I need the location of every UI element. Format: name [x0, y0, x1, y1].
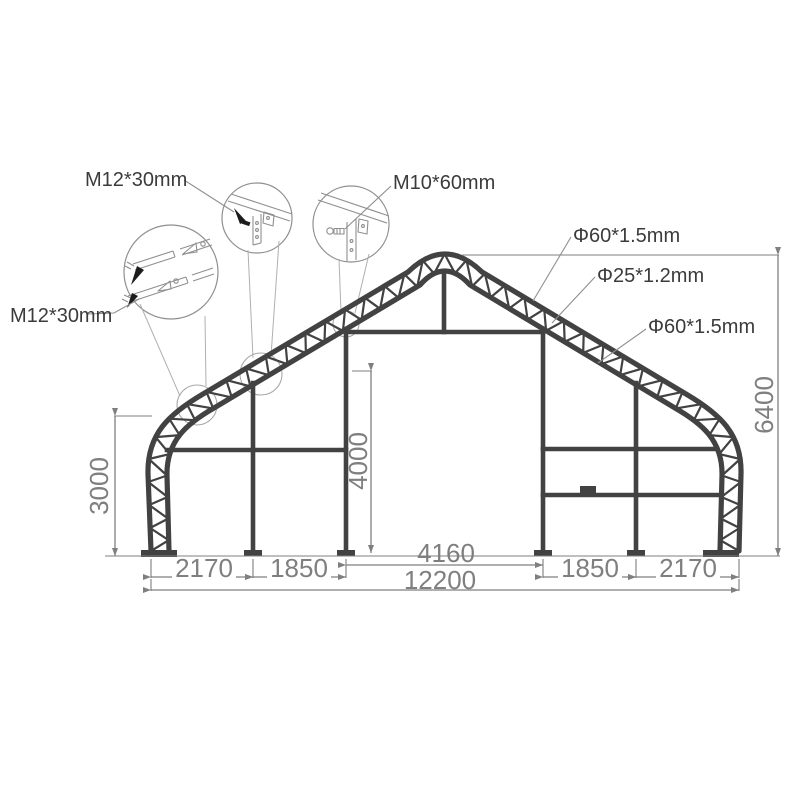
rail-bracket [580, 486, 596, 494]
shelter-frame-drawing: 3000 4000 6400 2170 1850 [0, 0, 800, 800]
frame [141, 254, 741, 557]
callout-bolt-top: M12*30mm [85, 169, 187, 191]
bolt-arrow-icon [131, 266, 144, 285]
detail-bubble-splice [122, 225, 218, 319]
detail-bubble-post-plate [222, 183, 292, 253]
interior-members [167, 272, 721, 551]
callout-tube-inner: Φ60*1.5mm [648, 316, 755, 338]
callout-bolt-left: M12*30mm [10, 305, 112, 327]
dim-seg-right-inner: 1850 [561, 553, 619, 583]
callout-tube-brace: Φ25*1.2mm [597, 265, 704, 287]
dim-total-width: 12200 [404, 565, 476, 595]
callout-bolt-door: M10*60mm [393, 172, 495, 194]
dim-door-height: 4000 [343, 432, 373, 490]
post-plate-detail-drawing [228, 194, 292, 245]
callout-tube-outer: Φ60*1.5mm [573, 225, 680, 247]
dim-side-height: 3000 [84, 457, 114, 515]
dim-door-width: 4160 [417, 538, 475, 568]
dim-seg-right-outer: 2170 [659, 553, 717, 583]
dim-seg-left-outer: 2170 [175, 553, 233, 583]
dim-ridge-height: 6400 [749, 376, 779, 434]
drawing-canvas: 3000 4000 6400 2170 1850 [0, 0, 800, 800]
bolt-icon [242, 220, 251, 226]
dim-seg-left-inner: 1850 [270, 553, 328, 583]
